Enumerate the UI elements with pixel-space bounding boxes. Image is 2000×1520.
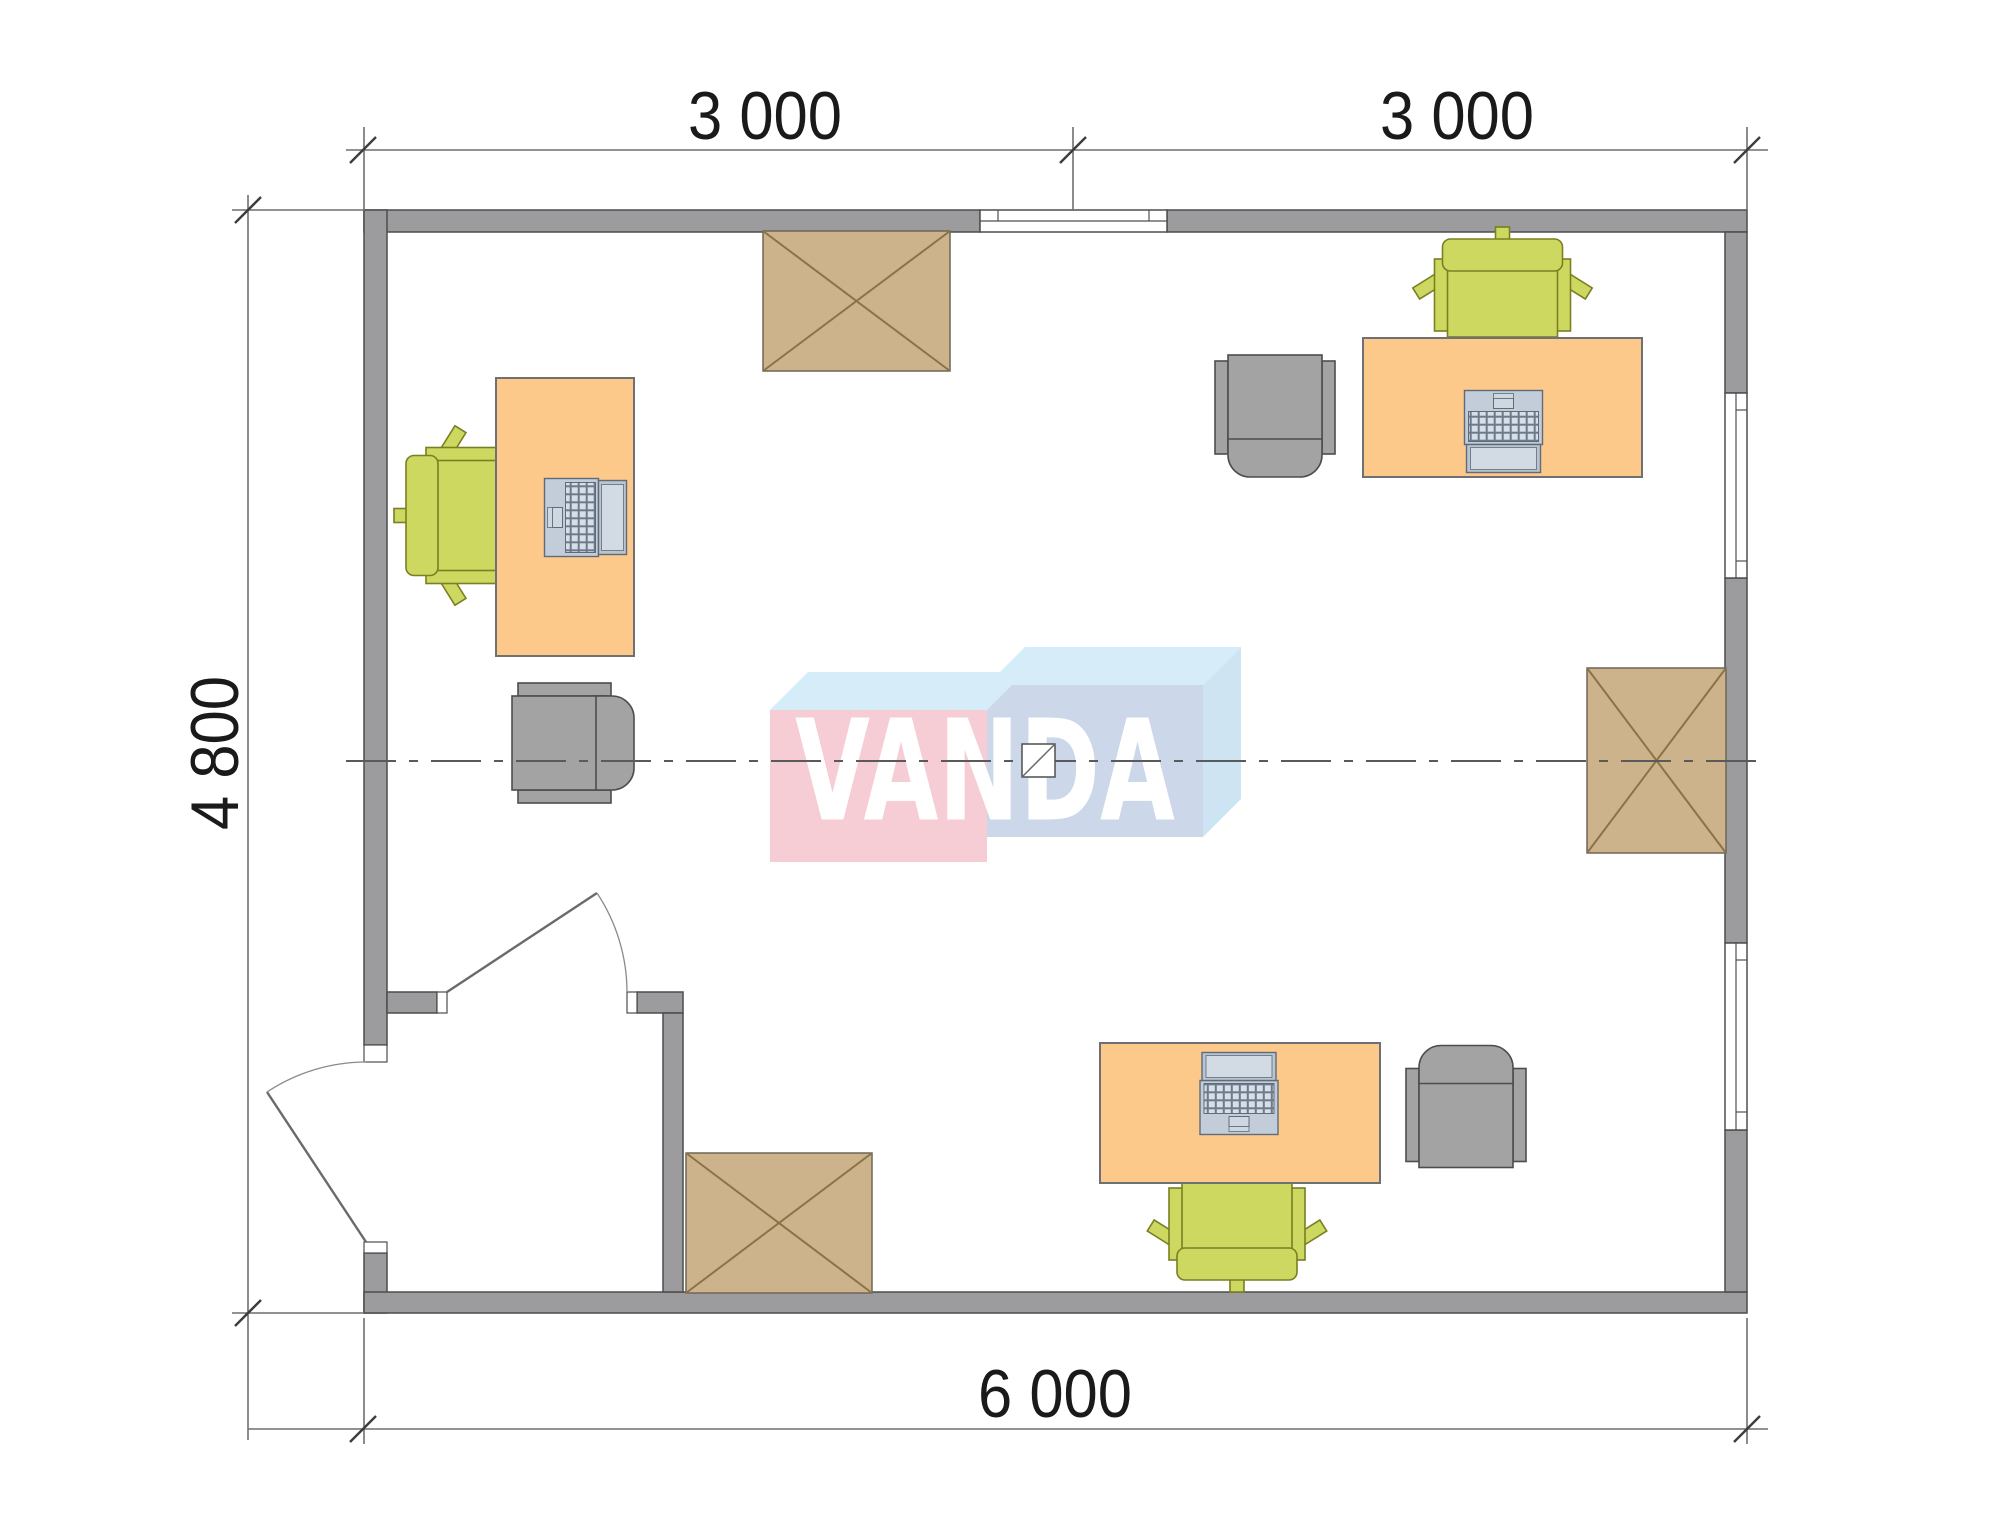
left-wall-upper-segment xyxy=(364,210,387,1045)
logo-box-blue-top xyxy=(987,647,1241,685)
laptop-left-desk xyxy=(545,479,627,557)
laptop-top-right-desk xyxy=(1465,391,1543,473)
dimension-label-top-right: 3 000 xyxy=(1380,78,1534,154)
interior-door-jamb-right xyxy=(627,992,637,1013)
armchair-left xyxy=(512,683,634,803)
wall-jamb-caps xyxy=(364,992,637,1253)
dimension-label-left: 4 800 xyxy=(177,676,253,830)
laptop-bottom-desk xyxy=(1200,1053,1278,1135)
top-wall-left-segment xyxy=(364,210,980,232)
bottom-wall xyxy=(364,1292,1747,1313)
dimension-label-top-left: 3 000 xyxy=(688,78,842,154)
vestibule-wall-stub-right xyxy=(637,992,683,1013)
office-chair-bottom xyxy=(1147,1182,1326,1292)
entrance-jamb-bottom xyxy=(364,1242,387,1253)
right-wall-lower-segment xyxy=(1725,1130,1747,1292)
vestibule-wall-stub-left xyxy=(387,992,437,1013)
entrance-door xyxy=(267,1062,366,1242)
logo-text: VANDA xyxy=(795,691,1175,854)
interior-door xyxy=(447,893,627,992)
crossed-table-bottom-left xyxy=(686,1153,872,1293)
center-marker xyxy=(1022,744,1055,777)
vanda-watermark: VANDA xyxy=(770,647,1241,862)
top-wall-right-segment xyxy=(1167,210,1747,232)
armchair-bottom-right xyxy=(1406,1046,1526,1168)
interior-door-jamb-left xyxy=(437,992,447,1013)
crossed-table-top xyxy=(763,231,950,371)
entrance-jamb-top xyxy=(364,1045,387,1062)
dimension-label-bottom: 6 000 xyxy=(978,1356,1132,1432)
armchair-top-right xyxy=(1215,355,1335,477)
window-right-lower xyxy=(1725,943,1747,1130)
right-wall-upper-segment xyxy=(1725,232,1747,393)
office-chair-top-right xyxy=(1413,227,1592,337)
floor-plan-drawing: VANDA 3 000 3 000 4 800 6 000 xyxy=(0,0,2000,1520)
floor-plan-canvas: VANDA 3 000 3 000 4 800 6 000 xyxy=(0,0,2000,1520)
window-right-upper xyxy=(1725,393,1747,578)
office-chair-left xyxy=(394,426,504,605)
vestibule-wall-vertical xyxy=(663,1013,683,1292)
window-top xyxy=(980,210,1167,232)
doors xyxy=(267,893,627,1242)
